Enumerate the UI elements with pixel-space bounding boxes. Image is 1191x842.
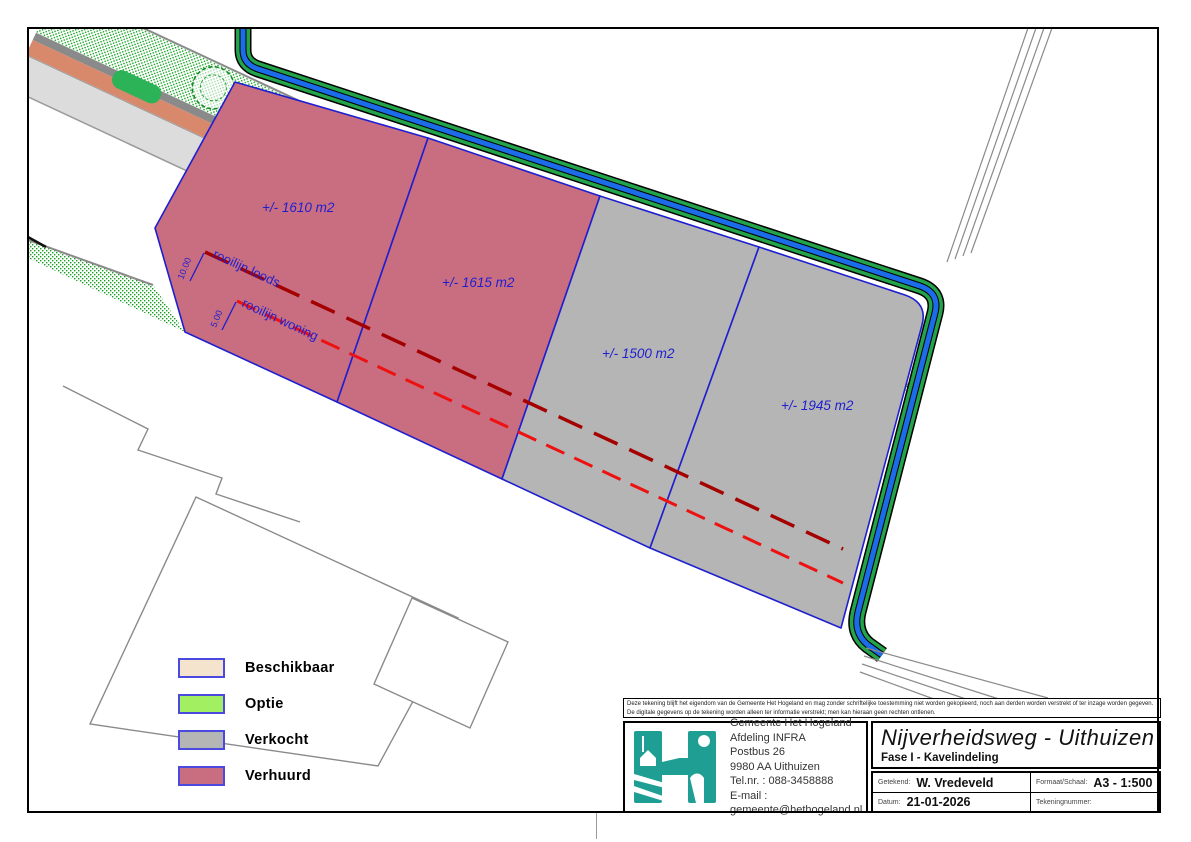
- parcel-4-area: +/- 1945 m2: [781, 398, 854, 413]
- title-block-title: Nijverheidsweg - Uithuizen Fase I - Kave…: [871, 721, 1161, 769]
- legend-label: Verhuurd: [245, 768, 311, 784]
- drawing-subtitle: Fase I - Kavelindeling: [881, 752, 1151, 764]
- title-block-organization: Gemeente Het Hogeland Afdeling INFRA Pos…: [623, 721, 868, 813]
- field-formaat-value: A3 - 1:500: [1093, 776, 1152, 790]
- legend-swatch-verhuurd: [178, 766, 225, 786]
- field-getekend-value: W. Vredeveld: [916, 776, 993, 790]
- field-formaat-label: Formaat/Schaal:: [1036, 779, 1087, 786]
- grass-verge-west: [28, 240, 185, 332]
- field-datum: Datum: 21-01-2026: [873, 792, 1030, 811]
- parcel-2-area: +/- 1615 m2: [442, 275, 515, 290]
- org-phone: Tel.nr. : 088-3458888: [730, 774, 866, 789]
- drawing-page: Nijverheidsweg: [0, 0, 1191, 842]
- field-tekeningnummer: Tekeningnummer:: [1030, 792, 1159, 811]
- legend: Beschikbaar Optie Verkocht Verhuurd: [178, 650, 335, 794]
- disclaimer-line-2: De digitale gegevens op de tekening word…: [627, 709, 1157, 718]
- legend-label: Beschikbaar: [245, 660, 335, 676]
- legend-swatch-beschikbaar: [178, 658, 225, 678]
- legend-label: Optie: [245, 696, 284, 712]
- legend-label: Verkocht: [245, 732, 309, 748]
- org-address-line2: 9980 AA Uithuizen: [730, 760, 866, 775]
- org-department: Afdeling INFRA: [730, 731, 866, 746]
- legend-swatch-optie: [178, 694, 225, 714]
- legend-item-optie: Optie: [178, 686, 335, 722]
- ditch-continuation-north: [947, 28, 1052, 262]
- field-formaat-schaal: Formaat/Schaal: A3 - 1:500: [1030, 773, 1159, 792]
- legend-item-verkocht: Verkocht: [178, 722, 335, 758]
- org-email: E-mail : gemeente@hethogeland.nl: [730, 789, 866, 818]
- field-tekeningnummer-label: Tekeningnummer:: [1036, 799, 1092, 806]
- org-name: Gemeente Het Hogeland: [730, 716, 866, 731]
- legend-swatch-verkocht: [178, 730, 225, 750]
- legend-item-beschikbaar: Beschikbaar: [178, 650, 335, 686]
- field-getekend-label: Getekend:: [878, 779, 910, 786]
- disclaimer: Deze tekening blijft het eigendom van de…: [623, 698, 1161, 718]
- title-block-fields: Getekend: W. Vredeveld Formaat/Schaal: A…: [871, 771, 1161, 813]
- org-address-line1: Postbus 26: [730, 745, 866, 760]
- field-getekend: Getekend: W. Vredeveld: [873, 773, 1030, 792]
- field-datum-label: Datum:: [878, 799, 901, 806]
- disclaimer-line-1: Deze tekening blijft het eigendom van de…: [627, 700, 1157, 709]
- ditch-continuation-east: [860, 648, 1048, 702]
- field-datum-value: 21-01-2026: [907, 795, 971, 809]
- parcel-1-area: +/- 1610 m2: [262, 200, 335, 215]
- fold-mark: [596, 813, 597, 839]
- drawing-title: Nijverheidsweg - Uithuizen: [881, 725, 1151, 751]
- parcel-3-area: +/- 1500 m2: [602, 346, 675, 361]
- gemeente-het-hogeland-logo: [630, 728, 722, 806]
- legend-item-verhuurd: Verhuurd: [178, 758, 335, 794]
